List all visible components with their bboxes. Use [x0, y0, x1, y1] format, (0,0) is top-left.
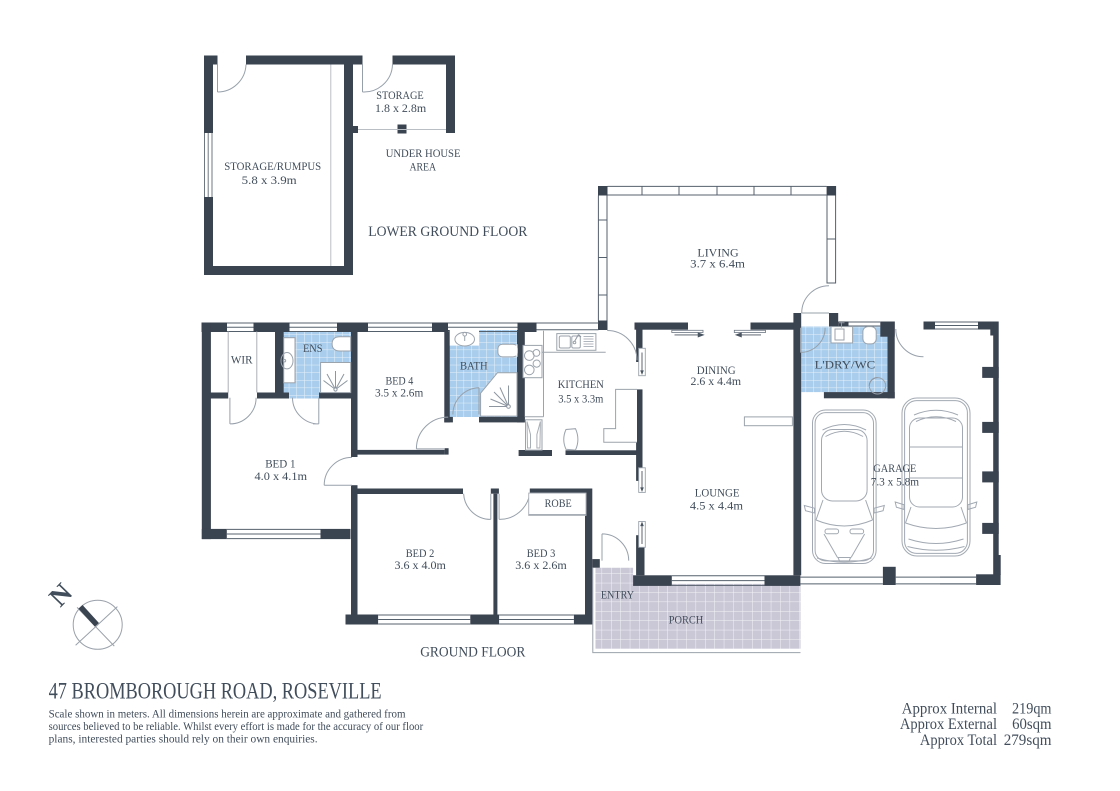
svg-text:ENS: ENS — [303, 343, 323, 355]
svg-text:GROUND FLOOR: GROUND FLOOR — [420, 644, 526, 661]
svg-text:2.6 x 4.4m: 2.6 x 4.4m — [691, 376, 742, 388]
svg-text:Approx External: Approx External — [900, 716, 997, 733]
svg-text:ROBE: ROBE — [545, 498, 572, 510]
svg-text:STORAGE: STORAGE — [376, 90, 424, 102]
svg-text:LOWER GROUND FLOOR: LOWER GROUND FLOOR — [368, 223, 528, 240]
svg-text:L'DRY/WC: L'DRY/WC — [815, 360, 876, 372]
svg-text:plans, interested parties shou: plans, interested parties should rely on… — [49, 732, 318, 746]
svg-text:4.0 x 4.1m: 4.0 x 4.1m — [255, 471, 308, 483]
svg-text:STORAGE/RUMPUS: STORAGE/RUMPUS — [224, 161, 321, 173]
svg-text:4.5 x 4.4m: 4.5 x 4.4m — [690, 500, 743, 512]
svg-text:7.3 x 5.8m: 7.3 x 5.8m — [871, 476, 920, 488]
svg-text:3.6 x 2.6m: 3.6 x 2.6m — [515, 560, 567, 572]
svg-text:279sqm: 279sqm — [1004, 732, 1052, 749]
svg-text:N: N — [43, 577, 78, 612]
svg-text:Approx Total: Approx Total — [920, 732, 997, 749]
svg-text:3.5 x 2.6m: 3.5 x 2.6m — [375, 388, 423, 400]
svg-text:LOUNGE: LOUNGE — [695, 488, 740, 500]
svg-text:3.7 x 6.4m: 3.7 x 6.4m — [690, 258, 745, 270]
svg-text:BED 2: BED 2 — [406, 548, 435, 560]
svg-text:Approx Internal: Approx Internal — [902, 701, 997, 718]
svg-text:3.5 x 3.3m: 3.5 x 3.3m — [558, 394, 603, 406]
svg-text:47 BROMBOROUGH ROAD, ROSEVILLE: 47 BROMBOROUGH ROAD, ROSEVILLE — [49, 679, 382, 704]
svg-text:219qm: 219qm — [1012, 701, 1052, 718]
svg-text:DINING: DINING — [697, 365, 736, 377]
svg-text:BATH: BATH — [460, 361, 488, 373]
svg-text:KITCHEN: KITCHEN — [558, 379, 604, 391]
svg-text:1.8 x 2.8m: 1.8 x 2.8m — [375, 103, 426, 115]
svg-text:UNDER HOUSE: UNDER HOUSE — [386, 148, 461, 160]
svg-text:WIR: WIR — [231, 355, 253, 367]
svg-text:5.8 x 3.9m: 5.8 x 3.9m — [242, 175, 297, 187]
svg-text:BED 3: BED 3 — [527, 548, 556, 560]
svg-text:BED 4: BED 4 — [386, 376, 414, 388]
svg-text:ENTRY: ENTRY — [601, 589, 634, 601]
svg-text:PORCH: PORCH — [669, 615, 704, 627]
svg-text:3.6 x 4.0m: 3.6 x 4.0m — [395, 560, 447, 572]
svg-text:BED 1: BED 1 — [265, 459, 296, 471]
svg-text:GARAGE: GARAGE — [873, 463, 916, 475]
svg-text:60sqm: 60sqm — [1012, 716, 1051, 733]
svg-text:AREA: AREA — [409, 162, 436, 174]
